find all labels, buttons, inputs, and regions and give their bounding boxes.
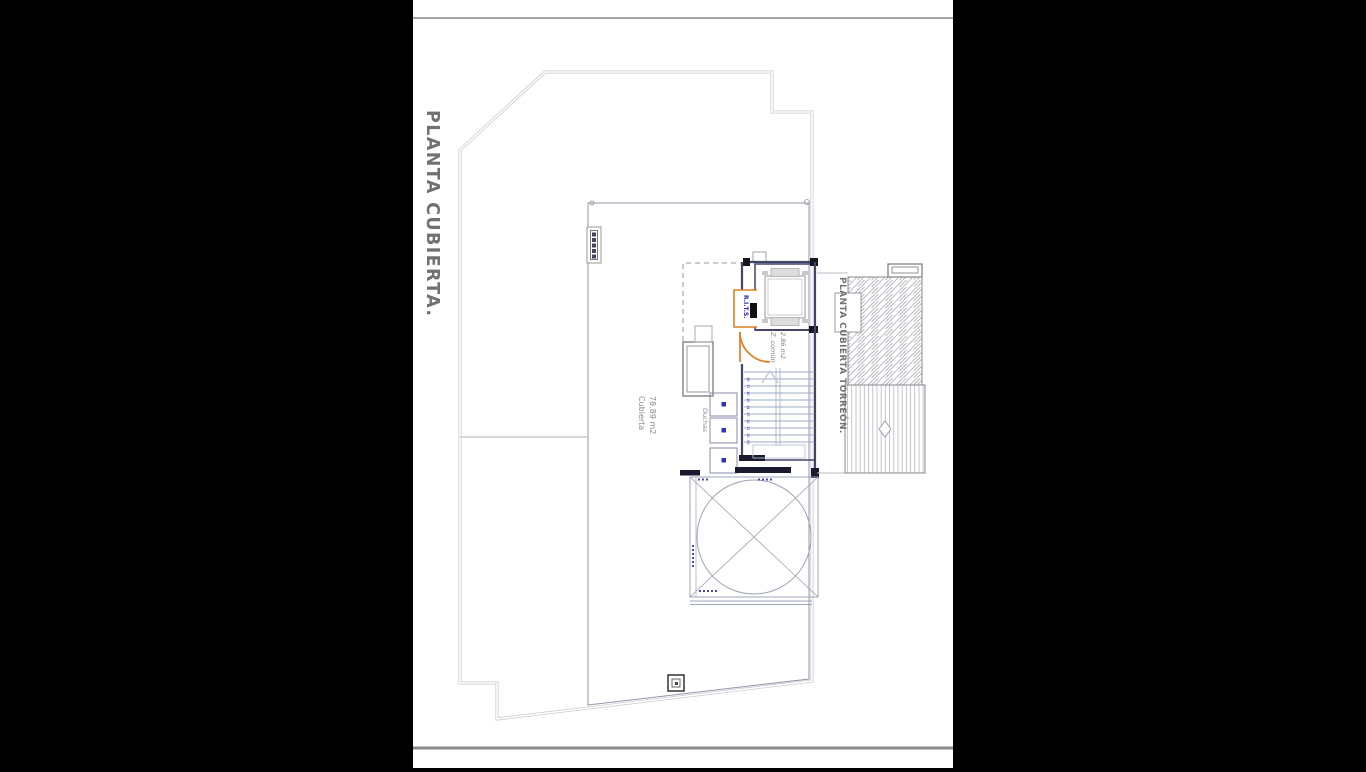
outer-roof-boundary — [460, 72, 812, 719]
step-numbers: 18 17 16 15 14 13 12 11 10 09 — [746, 377, 750, 445]
stair-direction-arrow — [762, 371, 778, 383]
guide-rail-bottom — [771, 318, 799, 326]
door-swing — [740, 332, 770, 362]
showers-label: Duchas — [701, 408, 709, 433]
step-number: 17 — [746, 384, 750, 389]
step-number: 13 — [746, 412, 750, 417]
elevator-car — [765, 276, 805, 318]
rits-door-leaf — [750, 303, 757, 318]
staircase: 18 17 16 15 14 13 12 11 10 09 — [744, 368, 813, 458]
common-zone-value: 2.86 m2 — [779, 332, 787, 359]
step-number: 14 — [746, 405, 750, 410]
torreon-title: PLANTA CUBIERTA TORREÓN. — [837, 277, 849, 434]
planter — [683, 326, 713, 396]
step-number: 11 — [746, 426, 750, 431]
step-number: 15 — [746, 398, 750, 403]
step-number: 18 — [746, 377, 750, 382]
step-number: 09 — [746, 440, 750, 445]
floor-plan-svg: PLANTA CUBIERTA. — [413, 0, 953, 768]
shower-drain — [722, 402, 727, 407]
step-number: 16 — [746, 391, 750, 396]
step-number: 10 — [746, 433, 750, 438]
step-number: 12 — [746, 419, 750, 424]
roof-drain — [668, 675, 684, 691]
wall-vent-grille — [587, 227, 601, 263]
dimension-marks — [692, 479, 772, 593]
roof-area-name: Cubierta — [637, 396, 646, 430]
planter-cap — [695, 326, 712, 342]
page-title: PLANTA CUBIERTA. — [422, 110, 442, 317]
rits-cabinet: R.I.T.S. — [734, 290, 758, 327]
torreon-vent — [888, 264, 922, 277]
torreon-roof — [817, 264, 925, 473]
common-zone-name: Z. común — [769, 331, 777, 363]
drawing-sheet: PLANTA CUBIERTA. — [413, 0, 953, 768]
rits-label: R.I.T.S. — [742, 295, 749, 319]
roof-area-value: 78.89 m2 — [648, 396, 657, 434]
shower-drain — [722, 458, 727, 463]
skylight-dome — [680, 467, 818, 605]
shower-stalls — [710, 393, 737, 473]
corner-marker-right — [805, 200, 810, 205]
shaft-top-box — [753, 252, 766, 262]
guide-rail-top — [771, 269, 799, 277]
shower-drain — [722, 428, 727, 433]
